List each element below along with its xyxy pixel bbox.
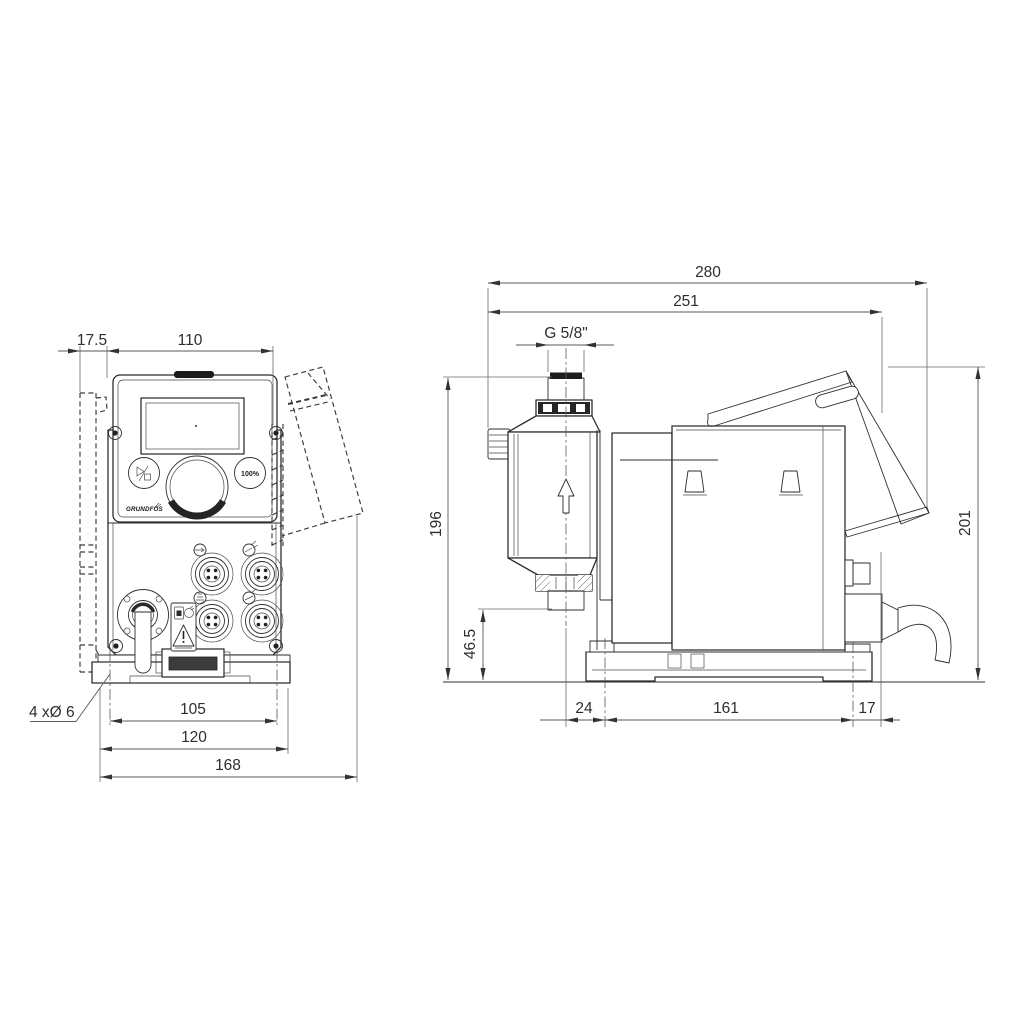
power-cable <box>135 612 151 673</box>
panel-top-tab <box>174 371 214 378</box>
dim-front-total-width: 168 <box>215 757 241 774</box>
warning-label <box>171 603 196 651</box>
hole-note: 4 xØ 6 <box>29 704 75 721</box>
cable-gland-block <box>845 594 882 642</box>
tilted-bracket-dashed <box>272 367 363 546</box>
side-view: 280 251 G 5/8" 196 46.5 201 <box>428 264 985 727</box>
dim-front-hole-spacing: 105 <box>180 701 206 718</box>
dosing-head-assembly <box>488 348 612 650</box>
dimensional-drawing: 100% GRUNDFOS <box>0 0 1024 1024</box>
suction-nut <box>536 575 592 591</box>
vent-knob[interactable] <box>488 429 510 459</box>
din-rail-clip <box>156 649 230 677</box>
boost-100-label: 100% <box>241 471 260 478</box>
front-view: 100% GRUNDFOS <box>29 332 363 782</box>
dim-front-offset: 17.5 <box>77 332 107 349</box>
pump-body-side <box>612 426 845 650</box>
dim-rear-height: 201 <box>957 510 974 536</box>
dim-front-offset-side: 24 <box>575 700 593 717</box>
cable-gland-cone <box>882 602 900 640</box>
coupling-housing <box>612 433 672 643</box>
dim-thread-size: G 5/8" <box>544 325 587 342</box>
hanging-slot <box>814 385 860 410</box>
technical-drawing-page: 100% GRUNDFOS <box>0 0 1024 1024</box>
dim-hole-spacing-side: 161 <box>713 700 739 717</box>
dim-side-depth: 251 <box>673 293 699 310</box>
plug-base <box>845 560 853 586</box>
dim-side-total-depth: 280 <box>695 264 721 281</box>
dim-front-base-width: 120 <box>181 729 207 746</box>
brand-logo: GRUNDFOS <box>126 506 164 513</box>
dim-valve-height: 46.5 <box>462 629 479 659</box>
dim-front-width: 110 <box>178 332 203 349</box>
dim-rear-offset-side: 17 <box>858 700 875 717</box>
dim-side-height: 196 <box>428 511 445 537</box>
threaded-plug <box>853 563 870 584</box>
discharge-nut <box>536 400 592 416</box>
wall-plate-dashed <box>80 393 107 672</box>
dosing-head <box>508 432 597 558</box>
power-cord <box>898 605 951 663</box>
